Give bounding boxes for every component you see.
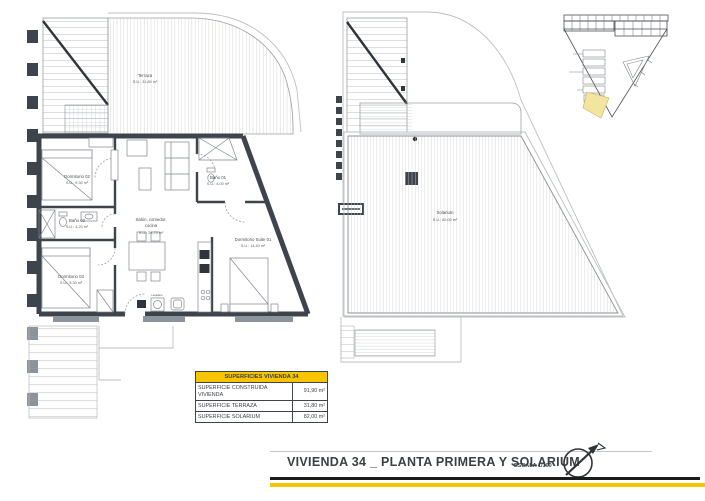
bed-suite-01: [221, 258, 278, 312]
room-area-dormitorio-02: S.U.: 9,30 m²: [66, 181, 89, 185]
title-bar-yellow: [270, 483, 705, 487]
scale-label: ESCALA 1/100: [514, 463, 552, 469]
table-row: SUPERFICIE TERRAZA 31,80 m²: [196, 401, 328, 412]
room-area-terraza: S.U.: 31,80 m²: [133, 80, 158, 84]
area-label: SUPERFICIE TERRAZA: [196, 401, 293, 412]
floor-plan-first-floor: Terraza S.U.: 31,80 m²: [25, 8, 320, 420]
room-area-bano-01: S.U.: 4,00 m²: [207, 182, 230, 186]
areas-table-header: SUPERFICIES VIVIENDA 34: [196, 372, 328, 383]
area-value: 31,80 m²: [293, 401, 328, 412]
room-label-lavadero: Lavadero: [151, 293, 163, 297]
room-label-salon-2: cocina: [145, 223, 158, 228]
staircase-upper: [43, 18, 108, 133]
area-value: 91,90 m²: [293, 383, 328, 401]
room-label-bano-01: Baño 01: [210, 175, 227, 180]
area-label: SUPERFICIE CONSTRUIDA VIVIENDA: [196, 383, 293, 401]
lower-structure: [341, 317, 461, 362]
key-plan-units-top: [564, 15, 668, 36]
solarium-deck: [344, 132, 625, 317]
table-row: SUPERFICIE SOLARIUM 82,00 m²: [196, 411, 328, 422]
drawing-sheet: Terraza S.U.: 31,80 m²: [0, 0, 705, 501]
areas-table: SUPERFICIES VIVIENDA 34 SUPERFICIE CONST…: [195, 371, 328, 423]
area-value: 82,00 m²: [293, 411, 328, 422]
key-plan-boundary: [564, 29, 667, 117]
room-label-salon-1: Salón, comedor,: [135, 217, 166, 222]
fixtures-bano-02: [39, 210, 97, 238]
room-label-suite-01: Dormitorio Suite 01: [235, 237, 272, 242]
room-label-bano-02: Baño 02: [69, 218, 86, 223]
room-area-salon: S.U.: 28,70 m²: [139, 231, 164, 235]
room-area-suite-01: S.U.: 14,40 m²: [241, 244, 266, 248]
key-plan-road: [623, 56, 649, 86]
room-label-dormitorio-03: Dormitorio 03: [58, 274, 84, 279]
room-area-dormitorio-03: S.U.: 9,30 m²: [60, 281, 83, 285]
table-row: SUPERFICIE CONSTRUIDA VIVIENDA 91,90 m²: [196, 383, 328, 401]
room-label-dormitorio-02: Dormitorio 02: [64, 174, 90, 179]
room-label-solarium: Solarium: [437, 210, 454, 215]
lavadero-fixtures: [137, 298, 184, 311]
room-area-bano-02: S.U.: 4,20 m²: [66, 225, 89, 229]
living-furniture: [111, 140, 211, 312]
room-label-terraza: Terraza: [138, 73, 153, 78]
staircase-lower: [29, 326, 173, 418]
bed-dormitorio-03: [42, 248, 113, 312]
window-sills: [53, 316, 293, 322]
key-plan: [553, 14, 678, 126]
title-bar-black: [270, 477, 700, 480]
room-area-solarium: S.U.: 82,00 m²: [433, 218, 458, 222]
bed-dormitorio-02: [42, 138, 113, 200]
area-label: SUPERFICIE SOLARIUM: [196, 411, 293, 422]
edge-stubs: [336, 96, 342, 180]
key-plan-highlight-unit: [583, 92, 609, 118]
